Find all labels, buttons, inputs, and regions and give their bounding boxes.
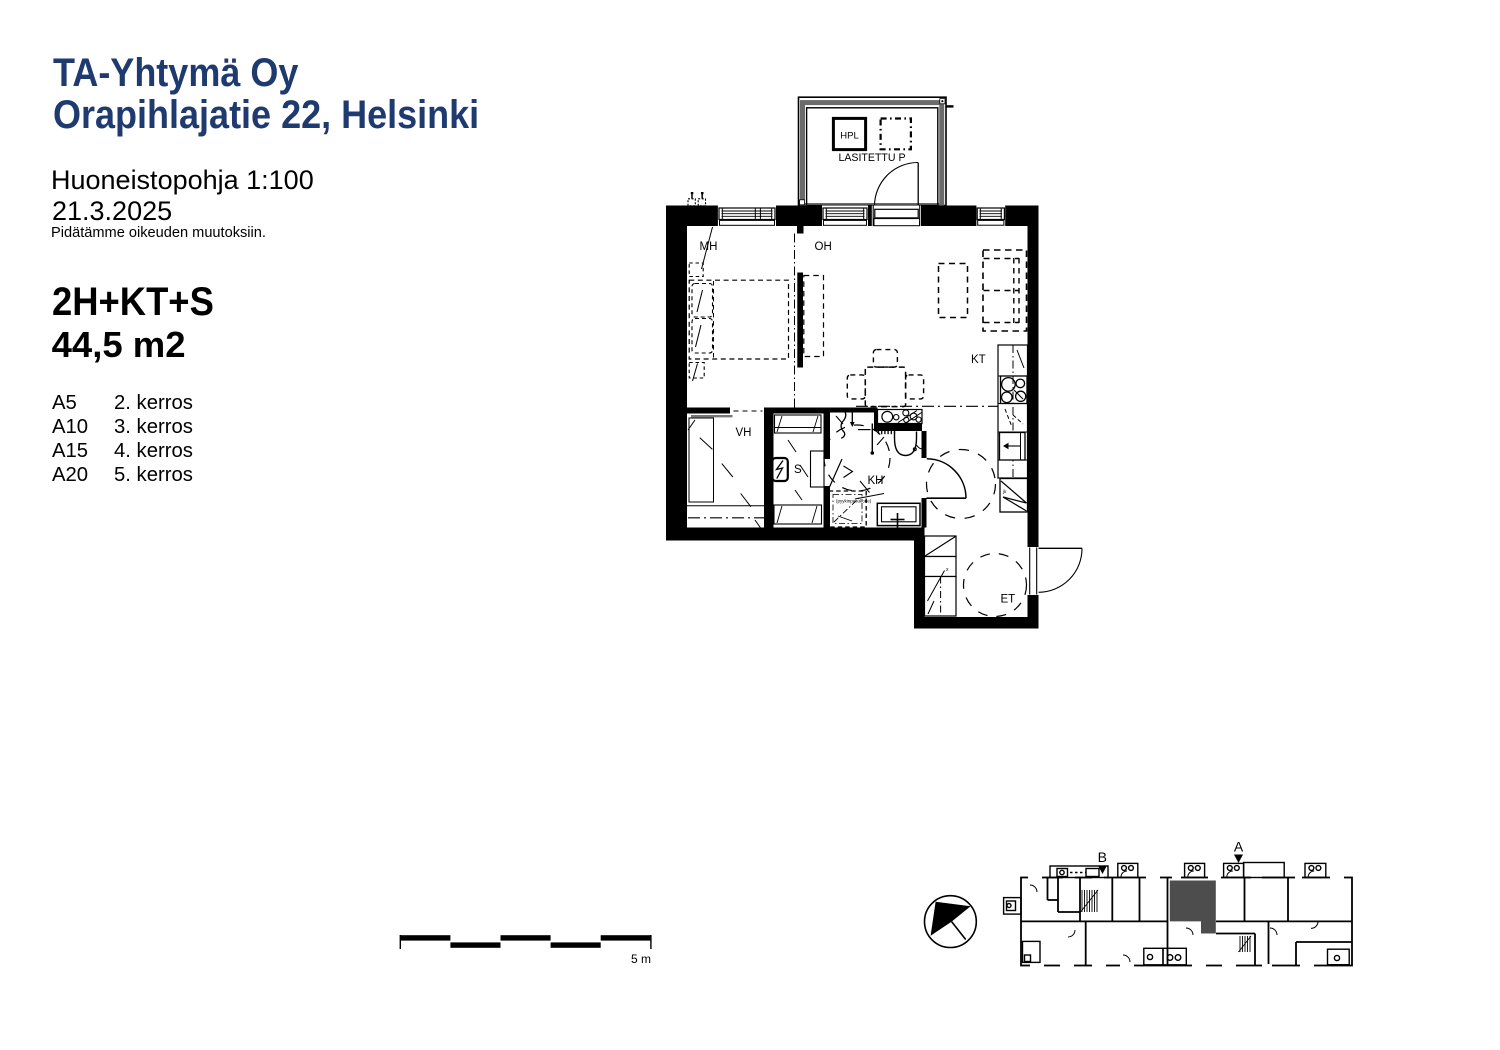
svg-text:5 m: 5 m <box>631 952 651 966</box>
svg-text:A: A <box>1234 839 1244 855</box>
svg-text:OH: OH <box>815 241 832 253</box>
svg-text:HPL: HPL <box>840 130 858 141</box>
svg-text:jk: jk <box>1002 489 1007 494</box>
svg-text:B: B <box>1098 849 1107 865</box>
svg-text:KT: KT <box>971 354 986 366</box>
svg-text:(pyykinpesukone): (pyykinpesukone) <box>836 499 872 504</box>
svg-text:VH: VH <box>736 427 752 439</box>
svg-text:ET: ET <box>1001 594 1016 606</box>
svg-text:LASITETTU P: LASITETTU P <box>838 152 905 164</box>
